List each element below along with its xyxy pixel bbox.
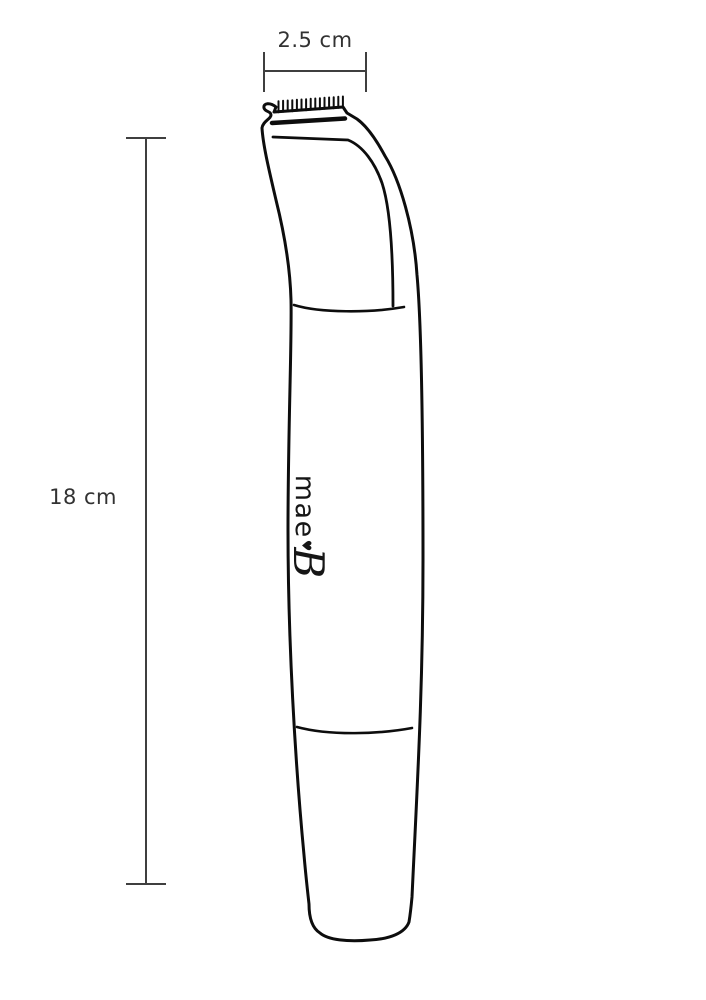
brand-script-b: B (284, 547, 333, 578)
brand-logo: mae♥B (290, 468, 330, 588)
brand-text: mae (289, 475, 320, 539)
trimmer-illustration (0, 0, 706, 1000)
diagram-canvas: 2.5 cm 18 cm mae♥B (0, 0, 706, 1000)
trimmer-body-outline (262, 104, 423, 941)
